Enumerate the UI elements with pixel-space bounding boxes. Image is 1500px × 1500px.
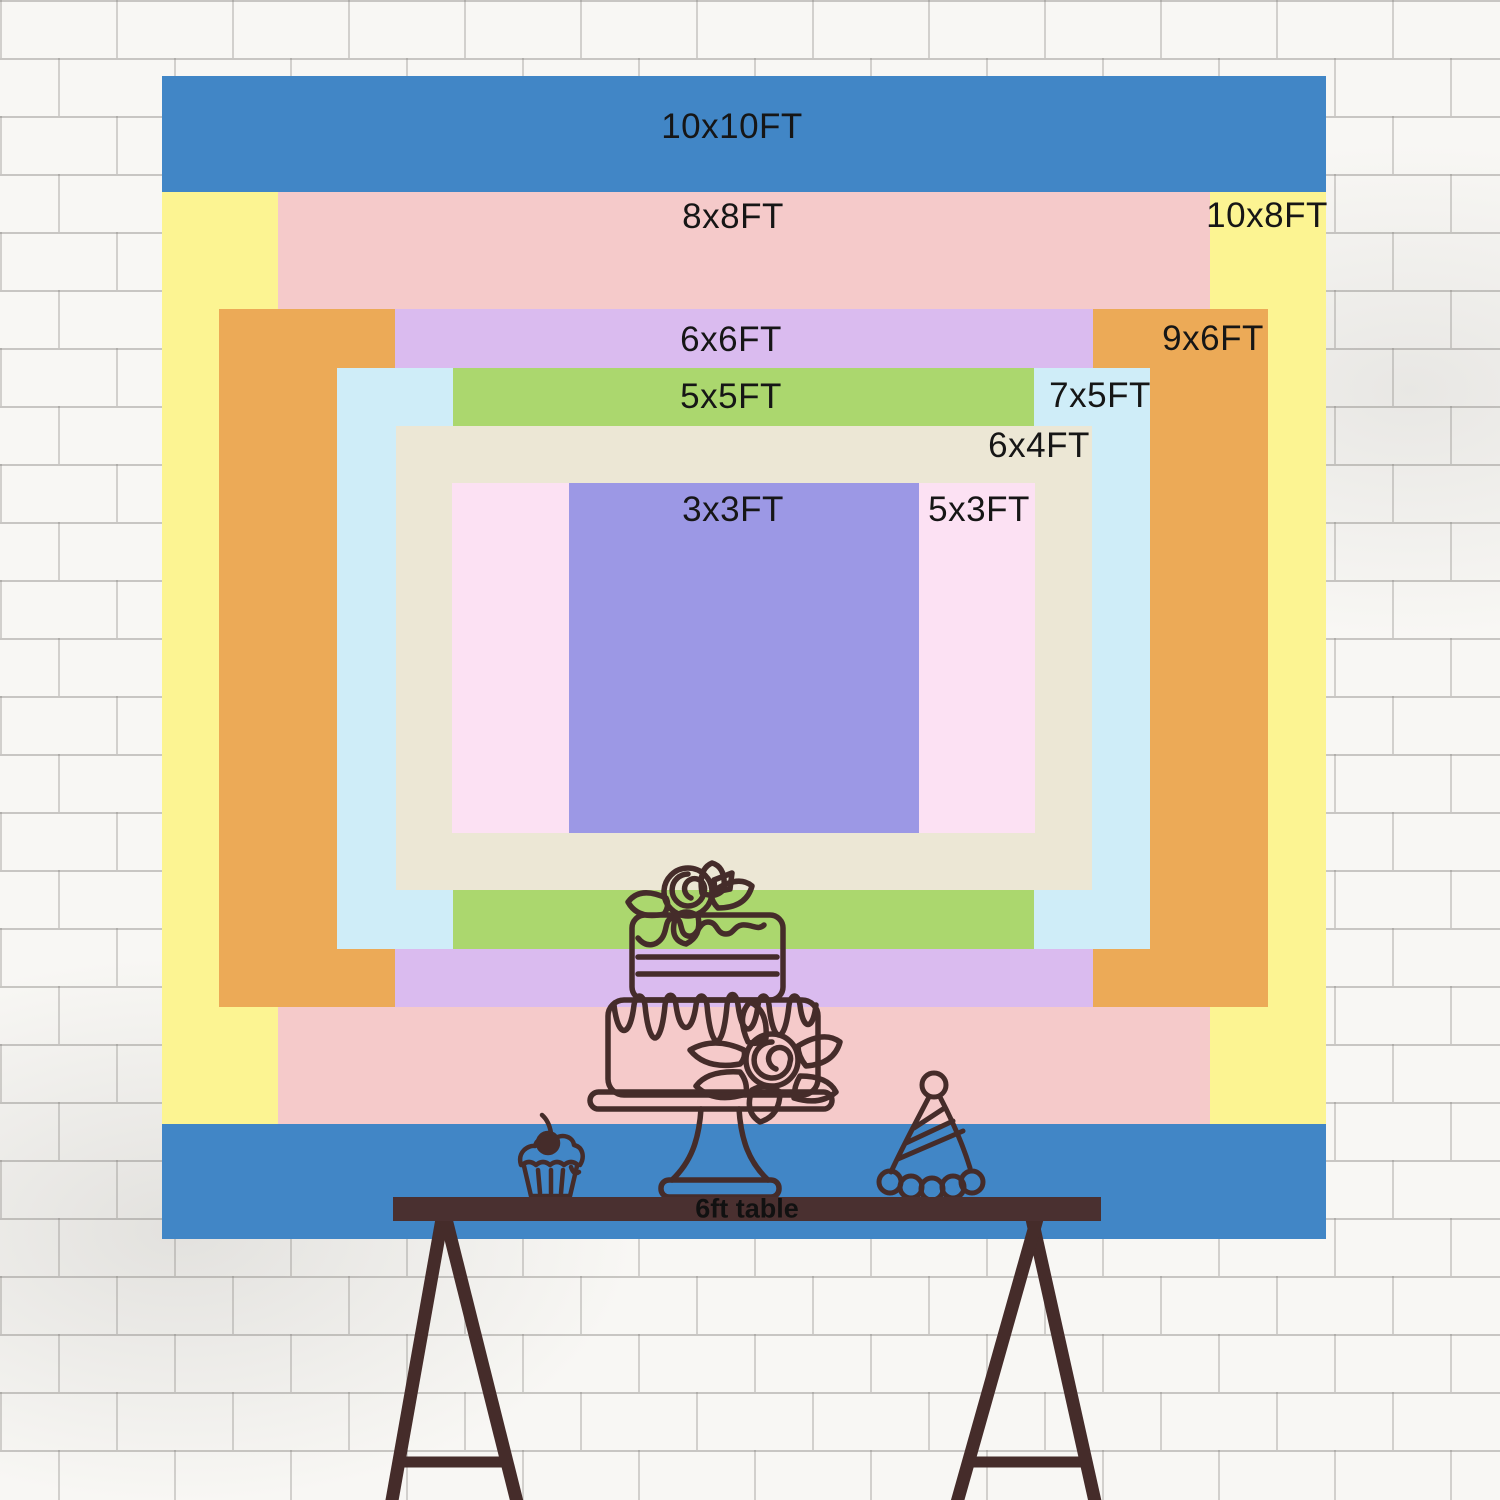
backdrop-size-chart: 10x10FT10x8FT8x8FT9x6FT6x6FT7x5FT5x5FT6x…	[0, 0, 1500, 1500]
table-legs-icon	[391, 1219, 1096, 1500]
cupcake-icon	[520, 1115, 583, 1196]
cake-icon	[590, 863, 840, 1197]
party-hat-icon	[879, 1073, 983, 1200]
table-label: 6ft table	[695, 1194, 799, 1225]
line-art-illustrations	[0, 0, 1500, 1500]
